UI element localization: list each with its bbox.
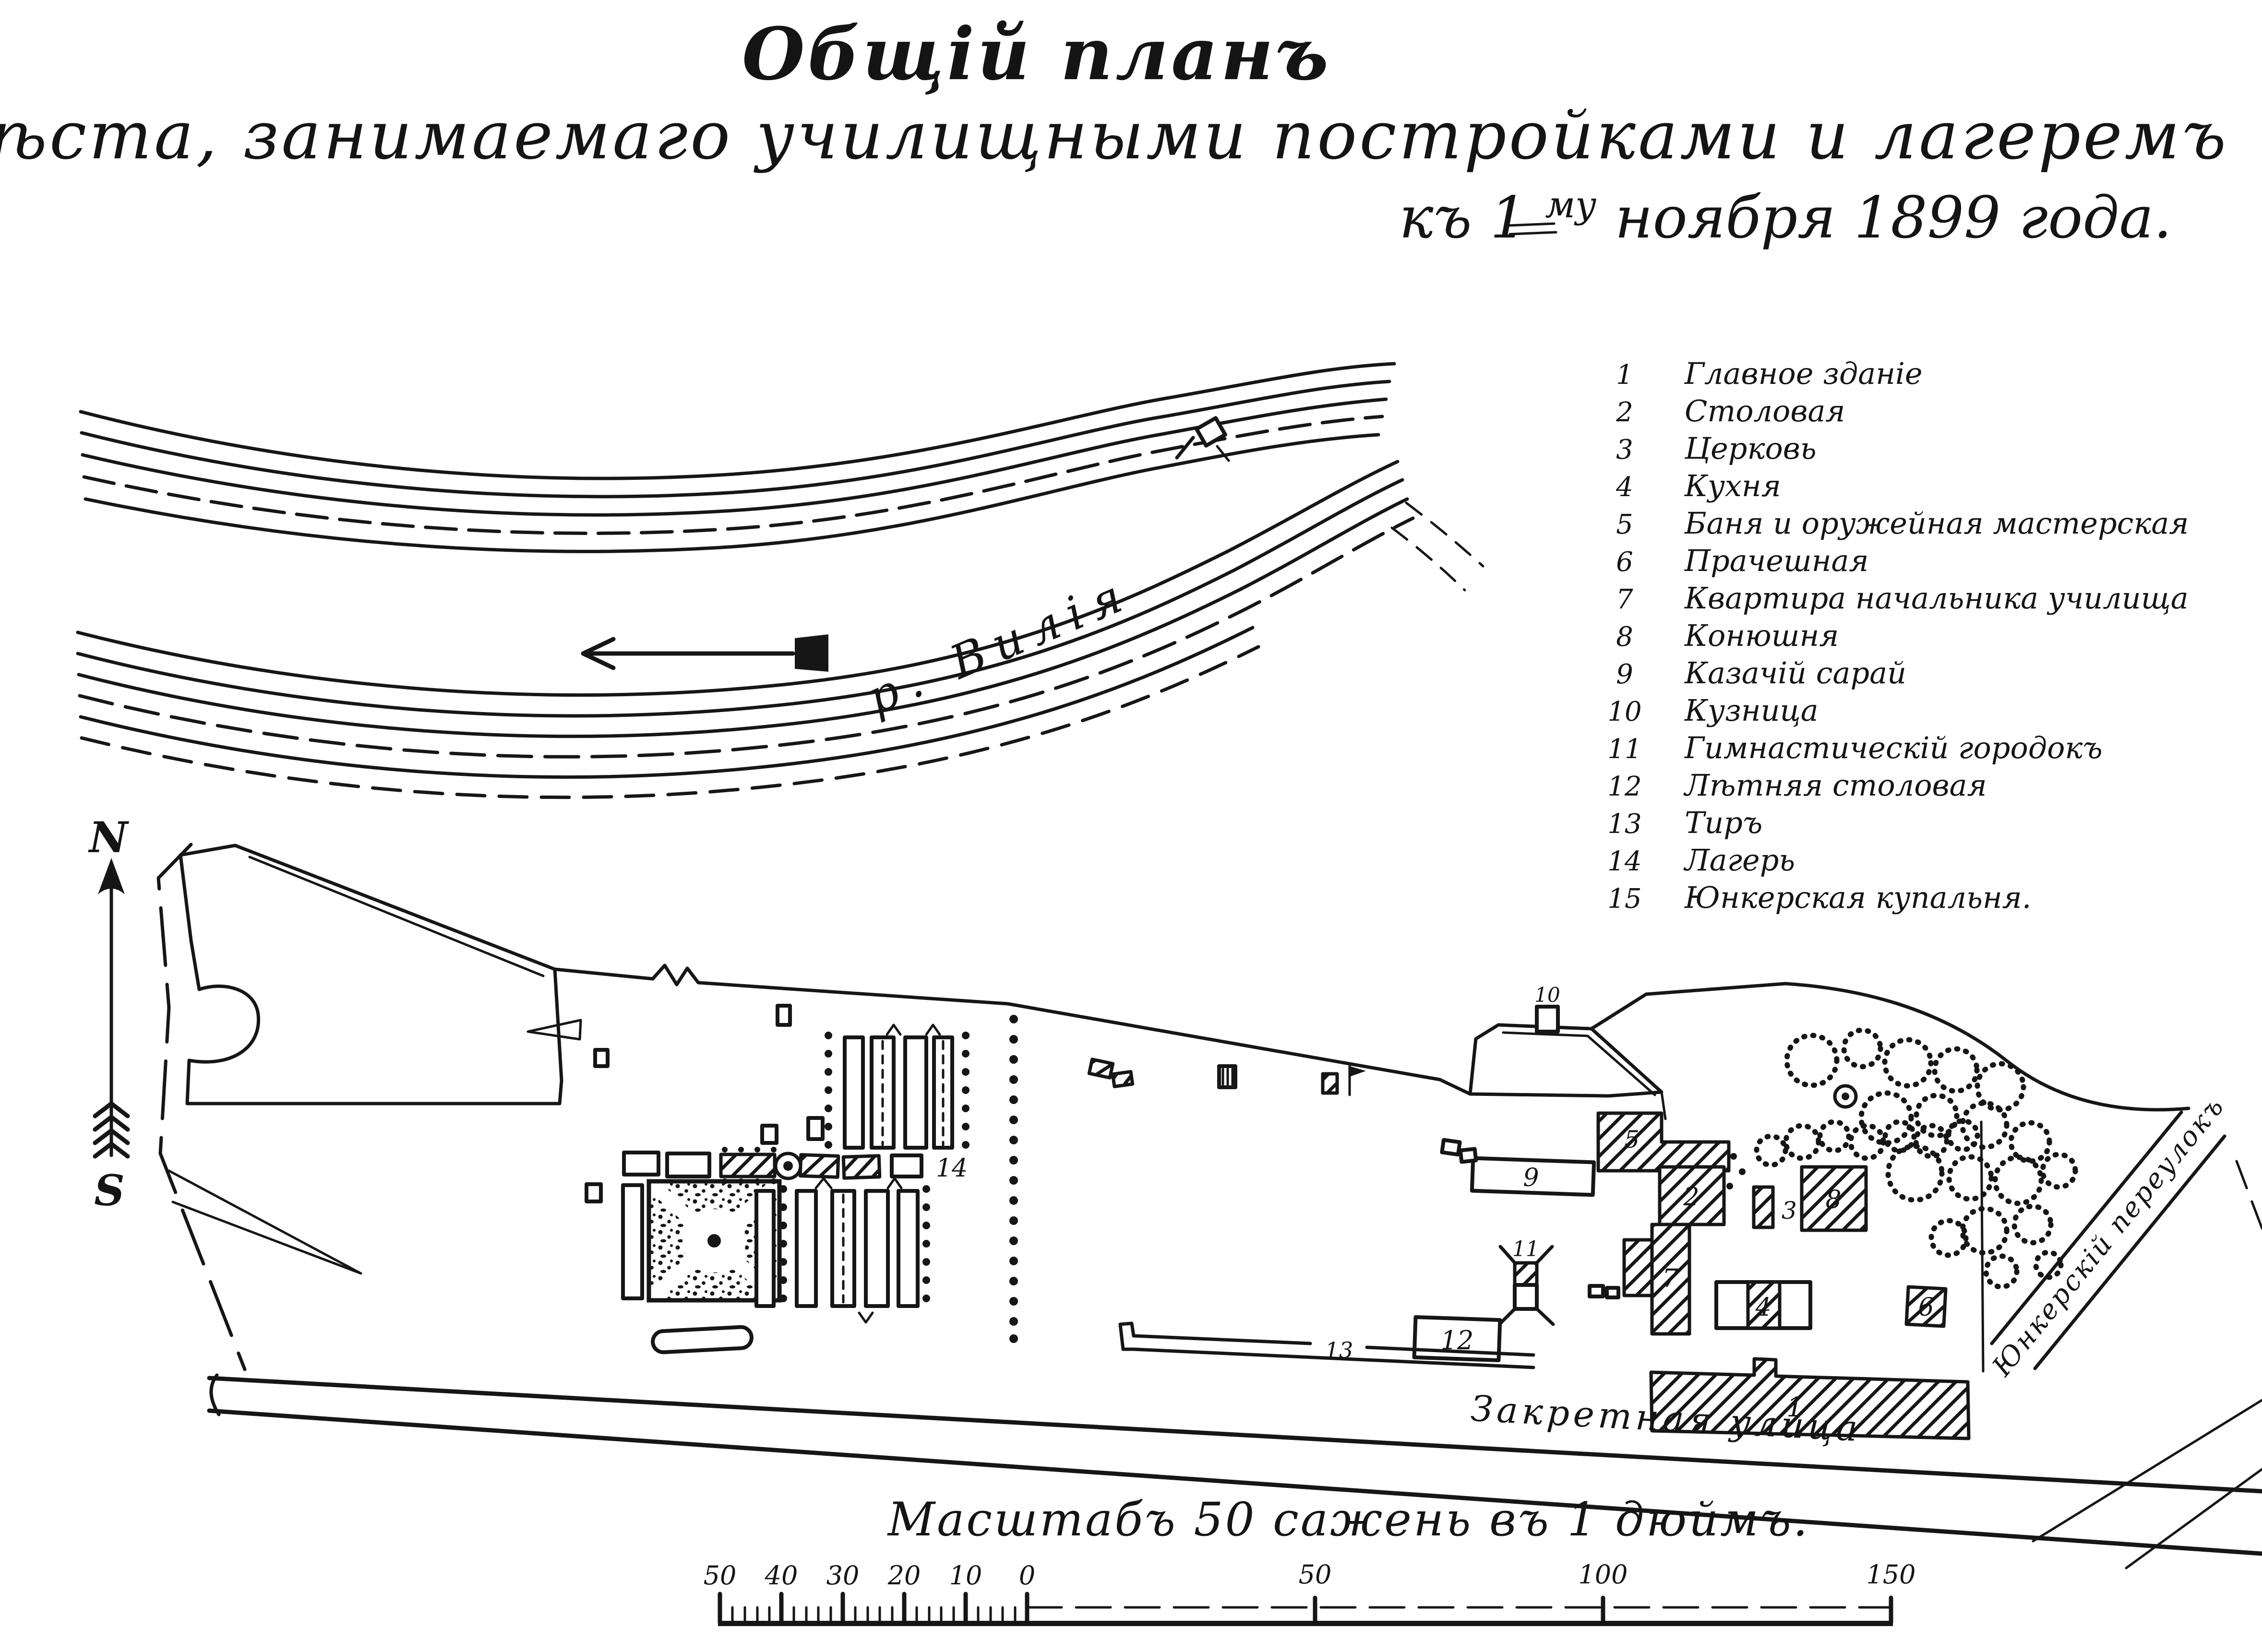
- camp-hut-c: [778, 1006, 790, 1025]
- legend-label-10: Кузница: [1684, 693, 1819, 728]
- scale-label-100: 100: [1578, 1559, 1628, 1590]
- scale-label-30: 30: [826, 1560, 860, 1591]
- scale-label-50L: 50: [704, 1560, 737, 1591]
- arrow-fletching: [795, 634, 828, 672]
- scale-label-150: 150: [1866, 1559, 1915, 1590]
- scale-label-40: 40: [765, 1560, 798, 1591]
- camp-middle-belt: [624, 1153, 922, 1178]
- tiny-hut-b: [586, 1184, 601, 1201]
- scale-baseline: [718, 1621, 1893, 1626]
- scale-label-50R: 50: [1299, 1559, 1332, 1590]
- building-7-number: 7: [1662, 1264, 1678, 1293]
- building-11-number: 11: [1512, 1237, 1539, 1261]
- legend-num-3: 3: [1616, 434, 1633, 465]
- legend-label-9: Казачій сарай: [1684, 655, 1906, 690]
- building-13-number: 13: [1325, 1337, 1353, 1363]
- legend-label-13: Тиръ: [1685, 805, 1762, 840]
- tiny-hut-a: [595, 1050, 608, 1066]
- title-line3-sup: му: [1545, 183, 1596, 226]
- building-3-number: 3: [1782, 1197, 1797, 1224]
- legend-num-8: 8: [1616, 621, 1633, 653]
- legend-num-2: 2: [1616, 397, 1633, 428]
- legend-label-6: Прачешная: [1684, 543, 1869, 578]
- building-4-number: 4: [1755, 1293, 1771, 1322]
- title-line1: Общій планъ: [742, 12, 1331, 96]
- legend-num-1: 1: [1616, 359, 1633, 391]
- legend-label-15: Юнкерская купальня.: [1684, 880, 2031, 915]
- title-line3-part1: къ 1: [1399, 185, 1527, 251]
- camp-hut-b: [808, 1118, 823, 1139]
- small-shed-a: [1590, 1286, 1603, 1296]
- legend-label-3: Церковь: [1684, 431, 1817, 466]
- scanned-plan-1899: Общій планъ мѣста, занимаемаго училищным…: [0, 0, 2262, 1652]
- legend-label-11: Гимнастическій городокъ: [1684, 730, 2103, 765]
- legend-num-5: 5: [1616, 509, 1633, 540]
- legend-num-7: 7: [1616, 584, 1633, 615]
- building-14-number: 14: [936, 1154, 968, 1183]
- building-2-number: 2: [1683, 1183, 1699, 1212]
- legend-num-12: 12: [1607, 771, 1641, 802]
- building-9-number: 9: [1523, 1164, 1539, 1192]
- legend-label-5: Баня и оружейная мастерская: [1684, 506, 2189, 541]
- building-3-church: [1754, 1187, 1773, 1227]
- compass-north-label: N: [88, 812, 130, 862]
- legend-num-15: 15: [1607, 883, 1641, 915]
- building-10-forge: [1537, 1007, 1558, 1032]
- legend-num-13: 13: [1607, 808, 1641, 840]
- scale-label-10: 10: [949, 1560, 982, 1591]
- legend-label-2: Столовая: [1685, 393, 1845, 428]
- camp-hut-a: [762, 1126, 777, 1143]
- scale-label-20: 20: [887, 1560, 921, 1591]
- legend-label-1: Главное зданіе: [1684, 356, 1923, 391]
- building-10-number: 10: [1534, 983, 1560, 1007]
- building-5-number: 5: [1624, 1126, 1640, 1153]
- building-6-number: 6: [1918, 1293, 1934, 1322]
- title-line3-part2: ноября 1899 года.: [1615, 185, 2172, 251]
- building-7-annex: [1624, 1240, 1652, 1295]
- legend-label-7: Квартира начальника училища: [1684, 581, 2189, 616]
- legend-label-12: Лѣтняя столовая: [1683, 768, 1987, 803]
- scale-caption: Масштабъ 50 сажень въ 1 дюймъ.: [887, 1493, 1809, 1546]
- small-shed-b: [1607, 1288, 1618, 1297]
- camp-building-west: [623, 1185, 642, 1298]
- legend-num-14: 14: [1607, 846, 1641, 877]
- dumbbell-walk: [652, 1327, 752, 1353]
- legend-label-4: Кухня: [1684, 468, 1781, 503]
- title-line2: мѣста, занимаемаго училищными постройкам…: [0, 97, 2228, 174]
- compass-south-label: S: [94, 1165, 125, 1215]
- legend-label-8: Конюшня: [1684, 618, 1839, 653]
- scale-label-0: 0: [1019, 1560, 1035, 1591]
- legend-num-6: 6: [1616, 547, 1633, 578]
- legend-num-4: 4: [1616, 472, 1633, 503]
- building-8-number: 8: [1825, 1186, 1841, 1214]
- legend-num-11: 11: [1607, 734, 1641, 765]
- legend-num-9: 9: [1616, 659, 1633, 690]
- legend-label-14: Лагерь: [1683, 843, 1795, 878]
- legend-num-10: 10: [1607, 696, 1641, 727]
